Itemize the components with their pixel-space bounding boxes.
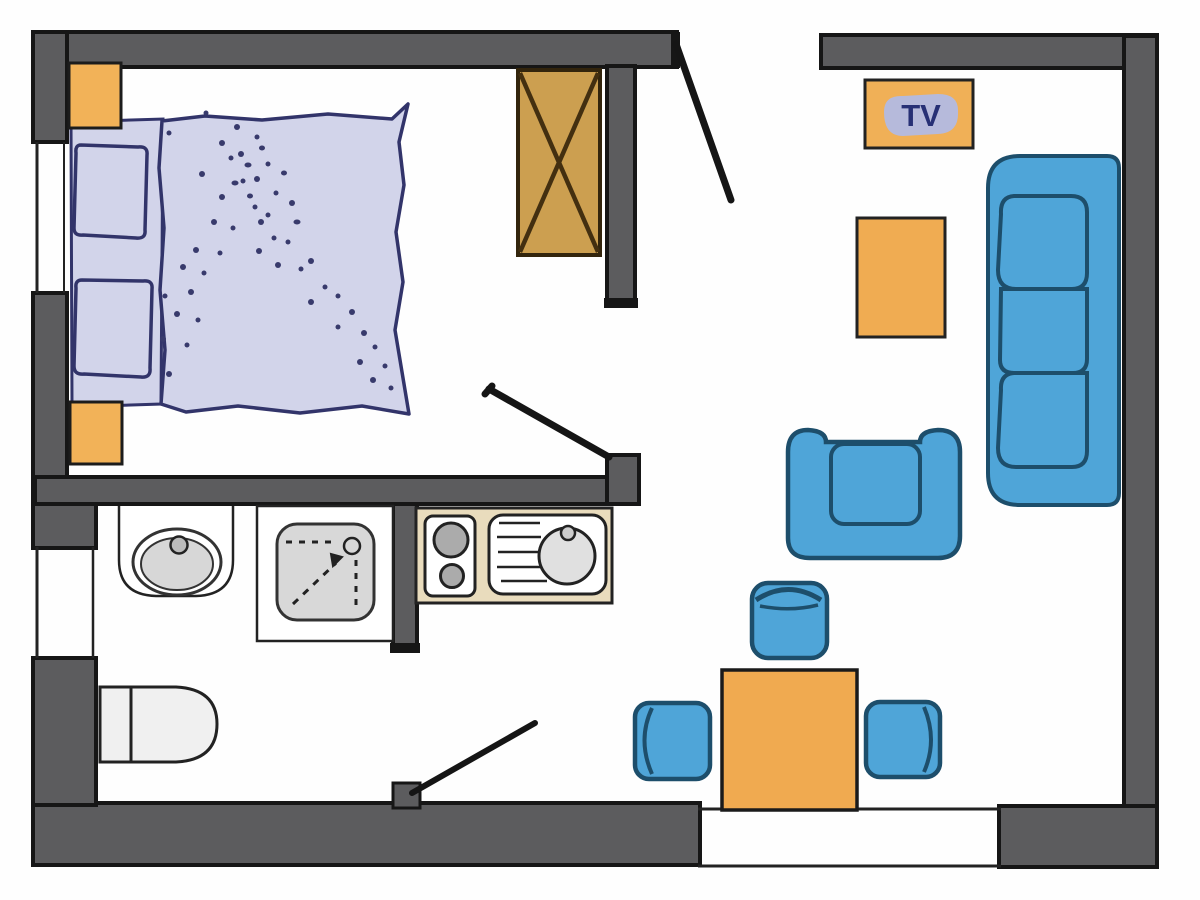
svg-text:TV: TV xyxy=(901,98,941,133)
